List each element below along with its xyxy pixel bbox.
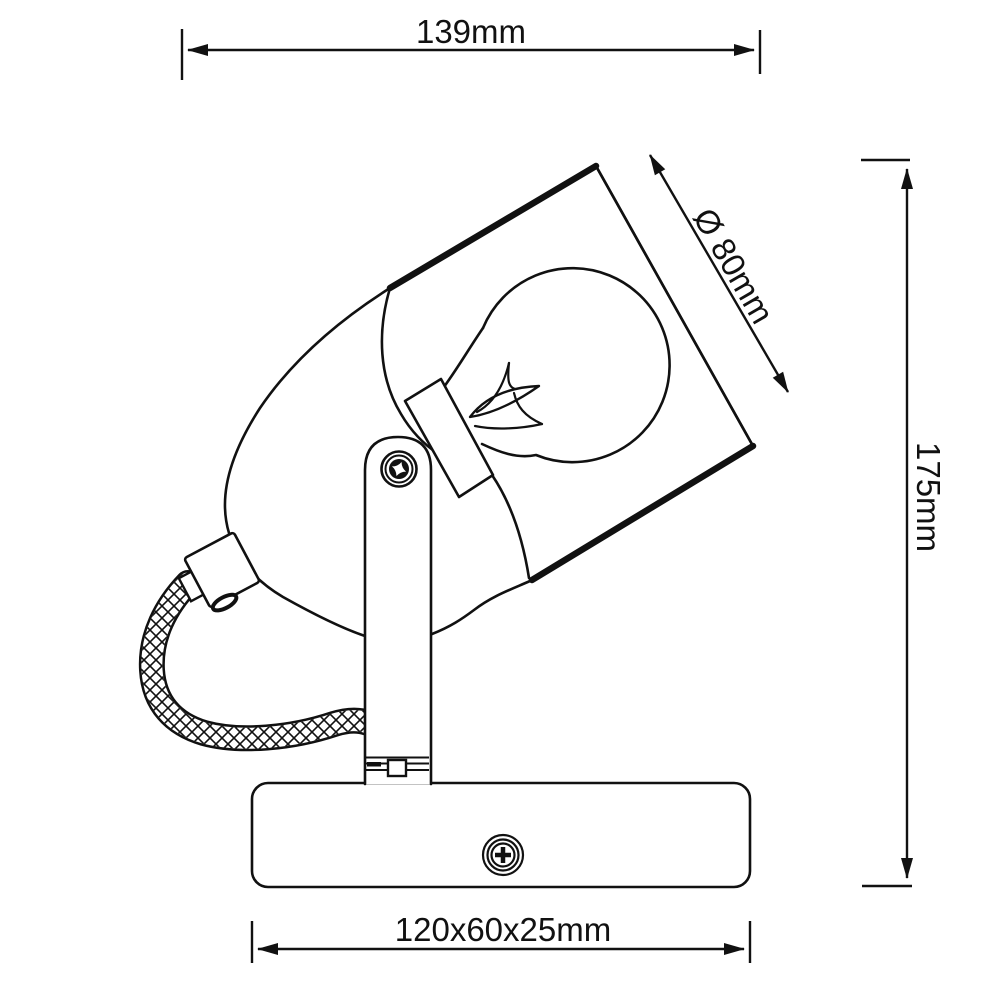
base-screw-icon <box>483 835 523 875</box>
dimension-base: 120x60x25mm <box>252 911 750 963</box>
dimension-width: 139mm <box>182 13 760 80</box>
dimension-height: 175mm <box>861 160 947 886</box>
technical-drawing-canvas: 139mm Ø 80mm 175mm 120x60x25mm <box>0 0 1000 1000</box>
base-plate <box>252 783 750 887</box>
spotlight-dimension-diagram: 139mm Ø 80mm 175mm 120x60x25mm <box>0 0 1000 1000</box>
dimension-height-label: 175mm <box>910 442 947 552</box>
dimension-diameter-label: Ø 80mm <box>686 202 781 330</box>
pivot-screw-icon <box>382 452 417 487</box>
mounting-arm <box>365 437 431 784</box>
dimension-base-label: 120x60x25mm <box>395 911 611 948</box>
dimension-width-label: 139mm <box>416 13 526 50</box>
lamp-head <box>225 166 753 640</box>
